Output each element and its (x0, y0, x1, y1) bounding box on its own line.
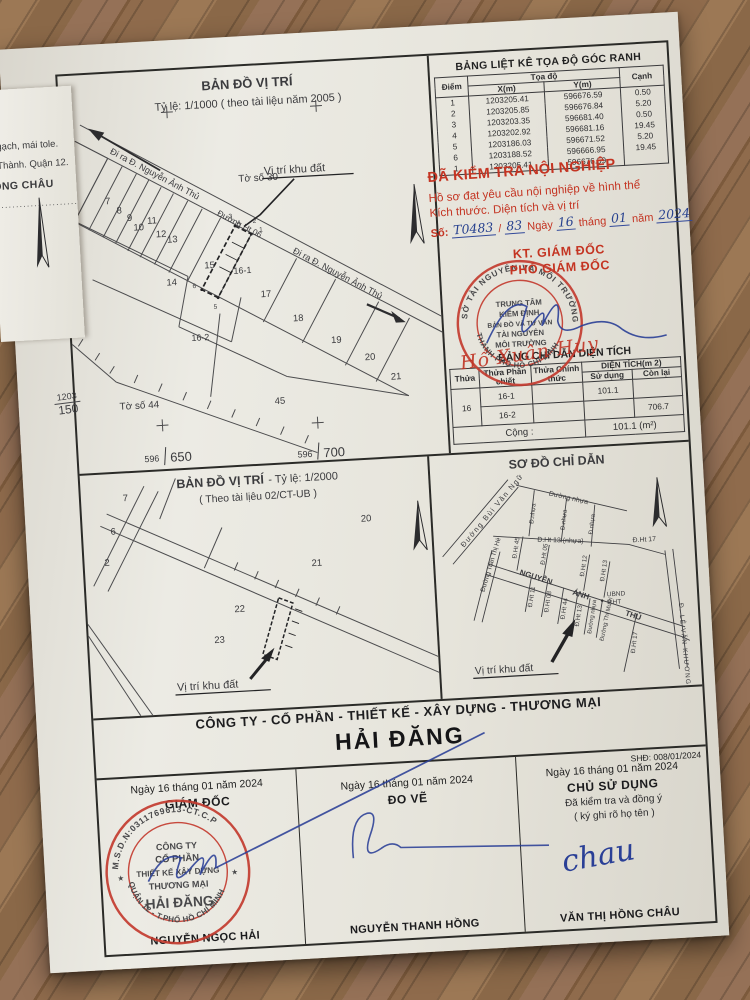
road-label: Đi ra Đ. Nguyễn Ảnh Thủ (108, 145, 201, 201)
owner-column: SHĐ: 008/01/2024 Ngày 16 tháng 01 năm 20… (516, 746, 715, 931)
street-label: Đ.nhựa (588, 513, 597, 535)
street-label: Đ.nhựa (528, 502, 537, 524)
owner-signature: chau (559, 832, 637, 879)
stamp-center-text: CÔNG TY (156, 839, 198, 852)
parcel-label: 21 (391, 371, 402, 383)
stamp-center-text: THIẾT KẾ XÂY DỰNG (136, 864, 220, 880)
col-header: Cạnh (620, 65, 665, 87)
parcel-label: 17 (260, 289, 271, 301)
street-label: NGUYỄN (519, 568, 554, 587)
document-frame: BẢN ĐỒ VỊ TRÍ Tỷ lệ: 1/1000 ( theo tài l… (55, 40, 717, 957)
grid-coordinate-label: 596 (144, 453, 159, 464)
poi-label: P.HT (607, 599, 621, 607)
parcel-label: 12 (156, 229, 167, 241)
corner-point-label: 5 (213, 304, 217, 311)
map2-source: ( Theo tài lịêu 02/CT-UB ) (199, 488, 317, 506)
signer-name: NGUYỄN THANH HỒNG (305, 915, 524, 939)
fold-text-line: ng gạch, mái tole. (0, 138, 74, 154)
street-lines (439, 470, 692, 682)
street-label: Đ.Ht 11 (527, 586, 537, 608)
street-label: Đ.Ht 05 (540, 543, 550, 566)
street-label: Đ.Ht 44 (559, 597, 569, 620)
stamp-star-icon: ★ (231, 867, 238, 876)
parcel-label: 7 (122, 492, 128, 503)
street-label: ÁNH (571, 588, 590, 602)
stamp-star-icon: ★ (117, 874, 124, 883)
parcel-label: 9 (127, 213, 133, 224)
parcel-label: 7 (105, 196, 111, 207)
parcel-label: 20 (361, 512, 372, 524)
street-label: Đ.Ht 45 (511, 536, 521, 559)
street-label: Đ.Ht 17 (630, 631, 640, 654)
parcel-label: 19 (331, 335, 342, 347)
north-arrow-icon (411, 500, 428, 550)
photo-scene: ng gạch, mái tole. ệp Thành. Quận 12. HỒ… (0, 0, 750, 1000)
parcel-label: 10 (133, 222, 144, 234)
grid-coordinate-label: 596 (297, 449, 312, 460)
parcel-label: 18 (293, 313, 304, 325)
handwritten-number: 83 (504, 219, 525, 234)
parcel-label: 22 (234, 603, 245, 615)
map1-scale: Tỷ lệ: 1/1000 ( theo tài liệu năm 2005 ) (154, 91, 342, 113)
north-arrow-icon (407, 184, 424, 244)
survey-document-sheet: ng gạch, mái tole. ệp Thành. Quận 12. HỒ… (0, 12, 729, 974)
handwritten-number: 01 (609, 212, 630, 227)
parcel-label: 14 (166, 277, 177, 289)
road-label: Đi ra Đ. Nguyễn Ảnh Thủ (291, 245, 384, 301)
street-label: Đ.Ht 13 (599, 559, 609, 582)
north-arrow-icon (650, 477, 667, 527)
signer-name: VĂN THỊ HỒNG CHÂU (525, 904, 715, 927)
street-label: Đ.Ht 17 (632, 536, 656, 544)
map2-scale: - Tỷ lệ: 1/2000 (268, 470, 338, 486)
parcel-label: 23 (214, 634, 225, 646)
street-label: THỦ (624, 609, 643, 623)
poi-label: UBND (607, 590, 626, 598)
fold-text-line: ệp Thành. Quận 12. (0, 157, 75, 173)
fold-text-line: HỒNG CHÂU (0, 177, 77, 194)
location-map-2000: BẢN ĐỒ VỊ TRÍ - Tỷ lệ: 1/2000 ( Theo tài… (80, 456, 443, 718)
road-label: Đường Ht 06 (216, 208, 264, 240)
parcel-label: 11 (147, 215, 157, 227)
street-label: Đường Trần Thị Hè (478, 536, 503, 593)
signature-section: CÔNG TY - CỔ PHẦN - THIẾT KẾ - XÂY DỰNG … (93, 686, 715, 955)
subject-site-outline (260, 597, 305, 661)
handwritten-number: 16 (555, 215, 576, 230)
street-label: Đường nhựa (548, 490, 589, 506)
parcel-label: 20 (365, 352, 376, 364)
street-label: Đ. LÊ VĂN KHƯƠNG (677, 603, 693, 686)
signature-columns: Ngày 16 tháng 01 năm 2024 GIÁM ĐỐC M.S.D… (97, 744, 716, 955)
company-round-stamp: M.S.D.N:0311769613-CT.C.P QUẬN 12 - T.PH… (98, 792, 258, 952)
middle-section: BẢN ĐỒ VỊ TRÍ - Tỷ lệ: 1/2000 ( Theo tài… (80, 442, 703, 721)
parcel-label: 16-2 (191, 332, 209, 343)
inspection-stamp-block: ĐÃ KIỂM TRA NỘI NGHIỆP Hồ sơ đạt yêu cầu… (427, 154, 682, 237)
folded-page-strip: ng gạch, mái tole. ệp Thành. Quận 12. HỒ… (0, 86, 85, 342)
location-map-1000: BẢN ĐỒ VỊ TRÍ Tỷ lệ: 1/1000 ( theo tài l… (57, 56, 451, 474)
grid-coordinate-label: 1203 150 (47, 390, 88, 418)
grid-coordinate-label: 650 (170, 449, 192, 465)
map2-title: BẢN ĐỒ VỊ TRÍ (176, 471, 265, 491)
parcel-label: 13 (167, 234, 178, 246)
parcel-label: 2 (104, 557, 110, 568)
parcel-label: 45 (274, 396, 285, 408)
sketch-title: SƠ ĐỒ CHỈ DẪN (508, 451, 605, 471)
info-column: BẢNG LIỆT KÊ TỌA ĐỘ GÓC RANH Điểm Tọa độ… (429, 42, 689, 453)
parcel-label: 21 (311, 557, 322, 569)
director-column: Ngày 16 tháng 01 năm 2024 GIÁM ĐỐC M.S.D… (97, 769, 306, 955)
parcel-label: 8 (116, 205, 122, 216)
parcel-label: 16-1 (233, 265, 251, 276)
parcel-label: 6 (110, 525, 116, 536)
grid-coordinate-label: 700 (323, 444, 345, 460)
corner-point-label: 6 (192, 283, 196, 290)
top-section: BẢN ĐỒ VỊ TRÍ Tỷ lệ: 1/1000 ( theo tài l… (57, 42, 688, 475)
stamp-center-text: CỔ PHẦN (155, 851, 200, 865)
map1-title: BẢN ĐỒ VỊ TRÍ (201, 73, 293, 93)
handwritten-number: 2024 (656, 207, 693, 223)
handwritten-number: T0483 (451, 221, 496, 238)
sheet-number-label: Tờ số 44 (119, 400, 160, 413)
street-label: Đ.nhựa (559, 509, 568, 531)
guide-sketch-map: SƠ ĐỒ CHỈ DẪN Đường Bùi Văn Ngữ Đường nh… (429, 442, 702, 699)
parcel-label: 15 (204, 260, 215, 272)
stamp-center-text: THƯƠNG MẠI (149, 878, 209, 891)
col-header: Điểm (434, 76, 469, 98)
surveyor-column: Ngày 16 tháng 01 năm 2024 ĐO VẼ NGUYỄN T… (296, 757, 525, 944)
